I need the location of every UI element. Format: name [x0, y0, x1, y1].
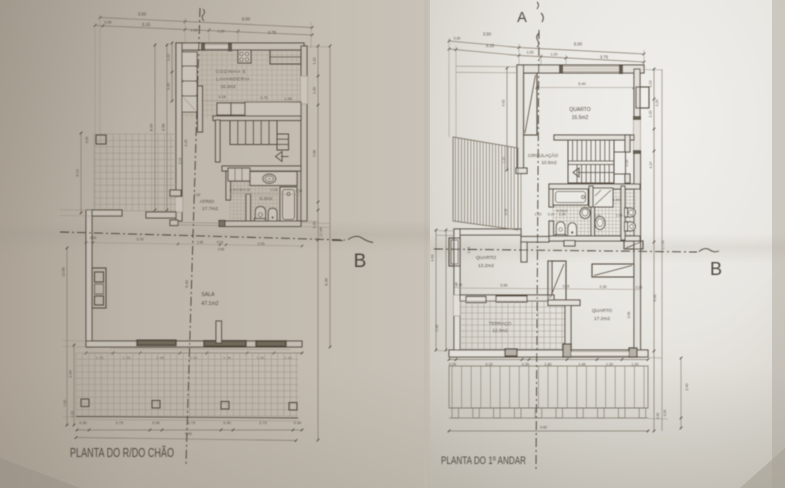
- svg-text:13.2m2: 13.2m2: [478, 263, 494, 269]
- svg-text:0.30: 0.30: [63, 400, 67, 407]
- svg-text:2.73: 2.73: [188, 421, 195, 425]
- svg-text:9.50: 9.50: [540, 426, 547, 430]
- svg-text:6.2m2: 6.2m2: [260, 196, 273, 201]
- svg-text:3.75: 3.75: [268, 30, 277, 35]
- svg-text:3.98: 3.98: [313, 150, 317, 157]
- svg-text:6.00: 6.00: [242, 17, 251, 22]
- svg-text:4.03: 4.03: [431, 255, 435, 262]
- svg-text:10.5m2: 10.5m2: [541, 160, 557, 165]
- svg-text:A: A: [517, 10, 527, 26]
- svg-text:3.58: 3.58: [162, 124, 166, 131]
- svg-text:3.50: 3.50: [483, 32, 492, 37]
- svg-text:0.30: 0.30: [663, 410, 667, 416]
- svg-text:1.23: 1.23: [313, 58, 317, 65]
- svg-text:1.35: 1.35: [616, 214, 623, 218]
- svg-text:3.76: 3.76: [137, 238, 144, 242]
- svg-text:0.30: 0.30: [454, 282, 458, 288]
- svg-text:1.20: 1.20: [218, 30, 225, 34]
- svg-text:3.25: 3.25: [258, 242, 265, 246]
- svg-text:16.2m2: 16.2m2: [220, 84, 236, 89]
- svg-text:6.00: 6.00: [653, 295, 657, 302]
- svg-text:2.20: 2.20: [184, 140, 188, 147]
- svg-text:1.23: 1.23: [649, 81, 653, 88]
- svg-text:47.1m2: 47.1m2: [201, 301, 218, 307]
- svg-text:QUARTO: QUARTO: [476, 255, 497, 261]
- svg-text:17.7m2: 17.7m2: [202, 206, 218, 212]
- svg-text:1.05: 1.05: [191, 29, 198, 33]
- svg-text:B: B: [354, 251, 367, 272]
- svg-text:0.35: 0.35: [435, 325, 439, 332]
- svg-text:0.30: 0.30: [71, 411, 75, 418]
- svg-text:17.2m2: 17.2m2: [594, 316, 610, 322]
- svg-text:6.00: 6.00: [574, 42, 583, 47]
- svg-text:3.50: 3.50: [138, 12, 147, 17]
- svg-text:0.15: 0.15: [548, 213, 554, 217]
- svg-text:0.75: 0.75: [260, 96, 267, 100]
- svg-text:3.20: 3.20: [313, 222, 317, 229]
- svg-text:1.20: 1.20: [96, 357, 103, 361]
- svg-text:0.15: 0.15: [594, 214, 600, 218]
- svg-text:0.30: 0.30: [454, 37, 461, 41]
- svg-text:1.90: 1.90: [197, 241, 204, 245]
- svg-text:3.15: 3.15: [486, 43, 495, 48]
- svg-text:1.20: 1.20: [649, 111, 653, 118]
- svg-text:0.30: 0.30: [79, 421, 86, 425]
- svg-text:LAVANDERIA: LAVANDERIA: [216, 77, 250, 83]
- svg-text:0.55: 0.55: [218, 248, 224, 252]
- svg-text:ATRIO: ATRIO: [200, 199, 215, 205]
- svg-text:0.30: 0.30: [105, 21, 112, 25]
- svg-text:17.00: 17.00: [319, 227, 323, 237]
- svg-text:B: B: [710, 259, 722, 279]
- svg-text:PLANTA DO 1º ANDAR: PLANTA DO 1º ANDAR: [441, 455, 526, 467]
- svg-text:2.73: 2.73: [259, 421, 266, 425]
- svg-text:3.56: 3.56: [627, 312, 631, 319]
- svg-text:4.02: 4.02: [502, 100, 506, 107]
- svg-text:5.40: 5.40: [578, 82, 585, 86]
- svg-text:1.20: 1.20: [551, 53, 558, 57]
- svg-text:4.37: 4.37: [649, 162, 653, 169]
- svg-text:2.40: 2.40: [69, 370, 73, 377]
- svg-text:1.20: 1.20: [284, 357, 291, 361]
- svg-text:9.50: 9.50: [185, 432, 192, 436]
- svg-text:2.18: 2.18: [271, 188, 278, 192]
- svg-text:17.00: 17.00: [661, 240, 665, 250]
- svg-text:3.35: 3.35: [599, 285, 606, 289]
- svg-text:PLANTA DO R/DO CHÃO: PLANTA DO R/DO CHÃO: [70, 446, 174, 460]
- svg-text:3.03: 3.03: [178, 158, 182, 165]
- svg-text:0.30: 0.30: [152, 421, 159, 425]
- svg-text:1.75: 1.75: [156, 357, 163, 361]
- svg-text:3.14: 3.14: [76, 169, 80, 176]
- svg-text:2.00: 2.00: [194, 193, 201, 197]
- svg-text:2.73: 2.73: [116, 421, 123, 425]
- svg-text:1.20: 1.20: [313, 87, 317, 94]
- svg-text:12.50: 12.50: [62, 267, 66, 277]
- svg-text:QUARTO: QUARTO: [592, 308, 613, 314]
- svg-text:1.48: 1.48: [284, 97, 291, 101]
- svg-text:3.18: 3.18: [218, 95, 225, 99]
- svg-text:1.20: 1.20: [257, 357, 264, 361]
- svg-text:0.30: 0.30: [223, 421, 230, 425]
- svg-text:0.24: 0.24: [217, 241, 223, 245]
- svg-text:1.25: 1.25: [559, 213, 566, 217]
- svg-text:2.40: 2.40: [685, 384, 689, 391]
- svg-text:COZINHA E: COZINHA E: [216, 69, 247, 75]
- svg-text:5.40: 5.40: [185, 280, 189, 287]
- svg-text:QUARTO: QUARTO: [569, 107, 590, 113]
- svg-text:0.30: 0.30: [90, 236, 97, 240]
- svg-text:3.15: 3.15: [142, 22, 151, 27]
- svg-text:12.3m2: 12.3m2: [492, 328, 508, 333]
- svg-text:1.20: 1.20: [190, 357, 197, 361]
- svg-text:1.23: 1.23: [167, 54, 171, 61]
- svg-text:2.33: 2.33: [625, 160, 629, 167]
- svg-text:0.30: 0.30: [636, 286, 643, 290]
- svg-text:3.06: 3.06: [504, 209, 508, 216]
- svg-text:0.30: 0.30: [85, 137, 89, 143]
- svg-text:TERRAÇO: TERRAÇO: [489, 321, 512, 326]
- svg-text:1.20: 1.20: [655, 100, 659, 107]
- svg-text:0.30: 0.30: [296, 189, 302, 193]
- svg-text:0.30: 0.30: [656, 413, 660, 419]
- svg-text:3.75: 3.75: [600, 55, 609, 60]
- svg-text:1.05: 1.05: [527, 51, 534, 55]
- svg-text:CIRCULAÇÃO: CIRCULAÇÃO: [528, 152, 559, 158]
- svg-text:5.50: 5.50: [500, 284, 507, 288]
- svg-text:0.15 0.84 0.15: 0.15 0.84 0.15: [230, 188, 251, 192]
- svg-text:0.30: 0.30: [294, 421, 301, 425]
- svg-text:2.86: 2.86: [467, 247, 471, 254]
- svg-text:6.39: 6.39: [325, 278, 329, 285]
- svg-text:1.20: 1.20: [502, 157, 506, 164]
- svg-text:16.5m2: 16.5m2: [572, 115, 589, 121]
- svg-text:SALA: SALA: [201, 292, 215, 298]
- svg-text:8.00: 8.00: [150, 124, 154, 131]
- svg-text:1.20: 1.20: [167, 83, 171, 90]
